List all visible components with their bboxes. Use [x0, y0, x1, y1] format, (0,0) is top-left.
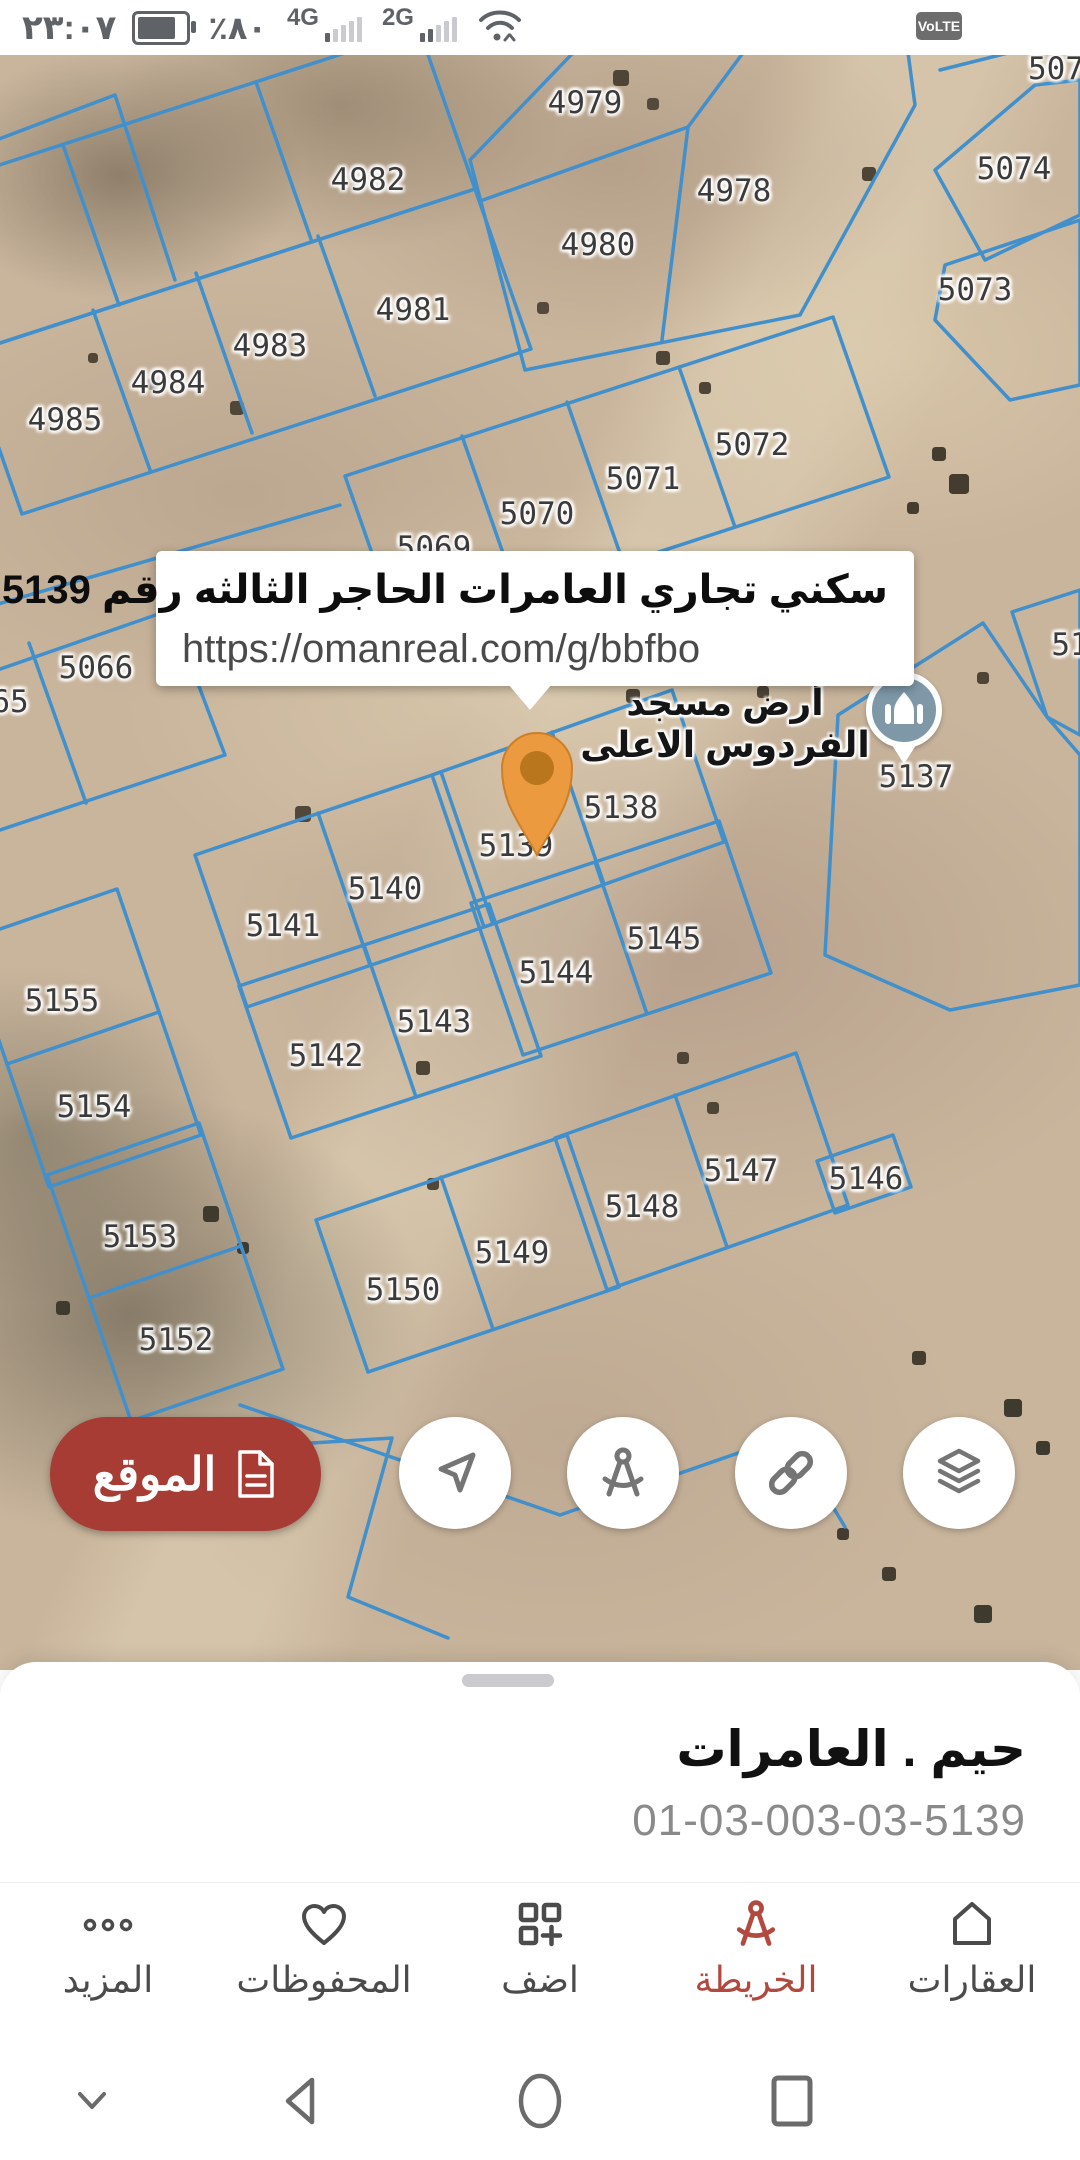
popup-title: سكني تجاري العامرات الحاجر الثالثه رقم 5…	[182, 567, 888, 613]
android-navigation-bar	[0, 2042, 1080, 2160]
more-dots-icon	[81, 1897, 135, 1951]
location-button-label: الموقع	[93, 1447, 217, 1501]
parcel-label-5140: 5140	[348, 871, 423, 907]
home-button[interactable]	[470, 2042, 610, 2160]
add-grid-icon	[513, 1897, 567, 1951]
heart-icon	[297, 1897, 351, 1951]
measure-button[interactable]	[567, 1417, 679, 1529]
navigation-arrow-icon	[427, 1445, 483, 1501]
nav-item-properties[interactable]: العقارات	[864, 1883, 1080, 2043]
signal-4g-icon: 4G	[287, 14, 362, 42]
parcel-label-5144: 5144	[519, 955, 594, 991]
parcel-label-507: 507	[1028, 55, 1080, 87]
parcel-label-4982: 4982	[331, 162, 406, 198]
compass-icon	[729, 1897, 783, 1951]
parcel-label-4978: 4978	[697, 173, 772, 209]
drafting-compass-icon	[594, 1444, 652, 1502]
bottom-navigation: العقارات الخريطة اضف المحفوظات	[0, 1882, 1080, 2043]
nav-item-add[interactable]: اضف	[432, 1883, 648, 2043]
mosque-icon	[883, 690, 925, 731]
parcel-label-5142: 5142	[289, 1038, 364, 1074]
link-icon	[762, 1444, 820, 1502]
layers-button[interactable]	[903, 1417, 1015, 1529]
selected-parcel-marker[interactable]	[487, 712, 587, 867]
status-bar: ٢٣:٠٧ ٪٨٠ 4G 2G VoLTE	[0, 0, 1080, 55]
parcel-label-51: 51	[1051, 627, 1080, 663]
parcel-label-5154: 5154	[57, 1089, 132, 1125]
parcel-label-5155: 5155	[25, 983, 100, 1019]
area-title: حيم . العامرات	[676, 1720, 1026, 1778]
parcel-label-5149: 5149	[475, 1235, 550, 1271]
layers-icon	[930, 1444, 988, 1502]
parcel-label-5153: 5153	[103, 1219, 178, 1255]
clock: ٢٣:٠٧	[22, 8, 116, 48]
parcel-label-5066: 5066	[59, 650, 134, 686]
bottom-sheet[interactable]: حيم . العامرات 01-03-003-03-5139	[0, 1662, 1080, 1882]
parcel-label-5074: 5074	[977, 151, 1052, 187]
nav-item-more[interactable]: المزيد	[0, 1883, 216, 2043]
home-icon	[945, 1897, 999, 1951]
share-link-button[interactable]	[735, 1417, 847, 1529]
nav-item-saved[interactable]: المحفوظات	[216, 1883, 432, 2043]
volte-badge: VoLTE	[916, 12, 962, 40]
parcel-label-5150: 5150	[366, 1272, 441, 1308]
parcel-label-5070: 5070	[500, 496, 575, 532]
parcel-label-4980: 4980	[561, 227, 636, 263]
wifi-icon	[477, 6, 523, 51]
parcel-label-5072: 5072	[715, 427, 790, 463]
mosque-land-label: أرض مسجد الفردوس الاعلى	[560, 682, 890, 766]
parcel-label-4981: 4981	[376, 292, 451, 328]
collapse-chevron-button[interactable]	[22, 2042, 162, 2160]
popup-link[interactable]: https://omanreal.com/g/bbfbo	[182, 627, 888, 672]
location-button[interactable]: الموقع	[50, 1417, 321, 1531]
parcel-label-5073: 5073	[938, 272, 1013, 308]
parcel-label-5071: 5071	[606, 461, 681, 497]
parcel-code: 01-03-003-03-5139	[632, 1796, 1026, 1846]
parcel-label-5152: 5152	[139, 1322, 214, 1358]
sheet-drag-handle[interactable]	[462, 1674, 554, 1687]
parcel-label-5145: 5145	[627, 921, 702, 957]
parcel-label-4983: 4983	[233, 328, 308, 364]
battery-percent: ٪٨٠	[208, 9, 267, 47]
popup-pointer	[508, 684, 552, 710]
parcel-label-65: 65	[0, 684, 29, 720]
parcel-info-popup[interactable]: سكني تجاري العامرات الحاجر الثالثه رقم 5…	[156, 551, 914, 686]
battery-icon	[132, 11, 190, 45]
parcel-label-4979: 4979	[548, 85, 623, 121]
back-button[interactable]	[232, 2042, 372, 2160]
parcel-label-5148: 5148	[605, 1189, 680, 1225]
my-location-button[interactable]	[399, 1417, 511, 1529]
parcel-label-4984: 4984	[131, 365, 206, 401]
recents-button[interactable]	[722, 2042, 862, 2160]
document-icon	[232, 1448, 278, 1500]
parcel-label-5138: 5138	[584, 790, 659, 826]
parcel-label-5146: 5146	[829, 1161, 904, 1197]
signal-2g-icon: 2G	[382, 14, 457, 42]
parcel-label-5141: 5141	[246, 908, 321, 944]
parcel-label-5147: 5147	[704, 1153, 779, 1189]
nav-item-map[interactable]: الخريطة	[648, 1883, 864, 2043]
parcel-label-4985: 4985	[28, 402, 103, 438]
parcel-label-5143: 5143	[397, 1004, 472, 1040]
